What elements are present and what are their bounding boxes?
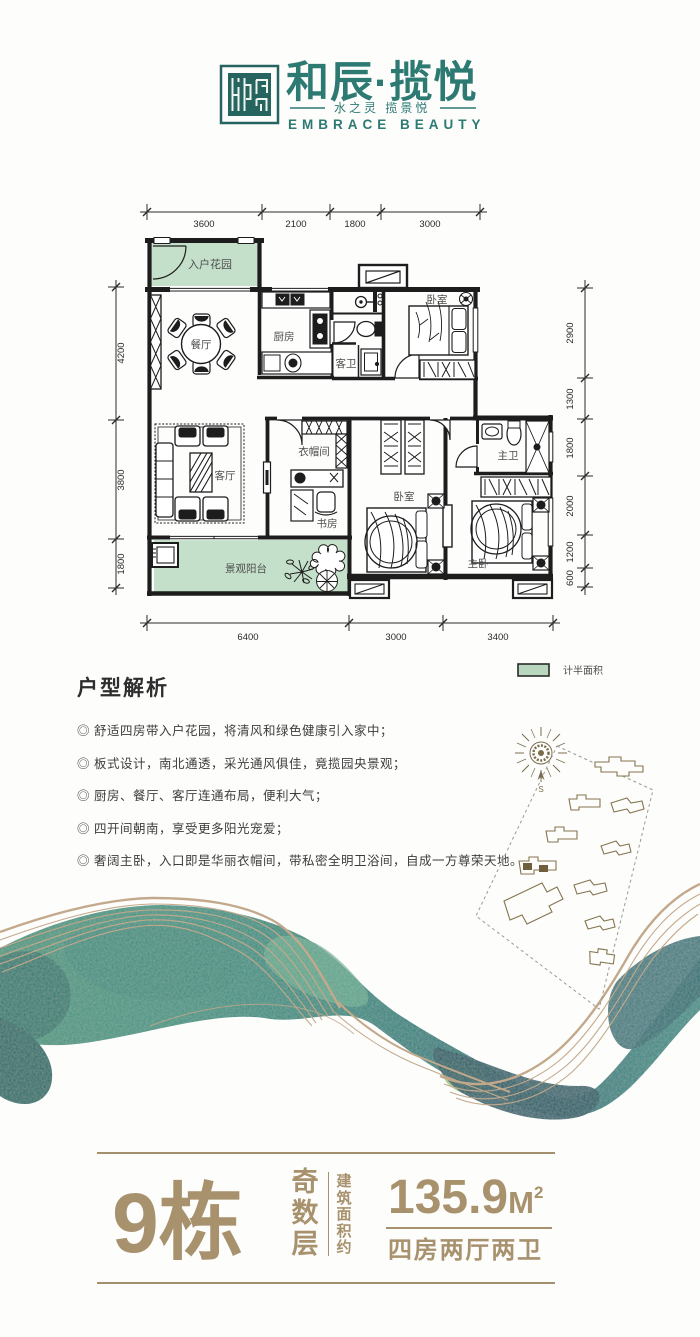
- svg-text:主卫: 主卫: [498, 450, 519, 462]
- svg-text:EMBRACE BEAUTY: EMBRACE BEAUTY: [288, 117, 486, 132]
- svg-text:3000: 3000: [385, 632, 406, 643]
- svg-text:1800: 1800: [344, 219, 365, 230]
- svg-text:S: S: [538, 785, 543, 794]
- svg-text:水之灵 揽景悦: 水之灵 揽景悦: [334, 101, 430, 115]
- svg-text:4200: 4200: [116, 342, 127, 363]
- svg-text:2900: 2900: [565, 322, 576, 343]
- svg-text:餐厅: 餐厅: [191, 338, 212, 351]
- svg-text:2100: 2100: [285, 219, 306, 230]
- svg-text:3600: 3600: [193, 219, 214, 230]
- svg-text:600: 600: [565, 570, 576, 586]
- svg-text:6400: 6400: [237, 632, 258, 643]
- svg-text:1300: 1300: [565, 388, 576, 409]
- svg-text:2000: 2000: [565, 495, 576, 516]
- svg-text:卧室: 卧室: [427, 293, 448, 306]
- svg-text:3800: 3800: [116, 469, 127, 490]
- svg-text:计半面积: 计半面积: [563, 664, 603, 677]
- svg-text:3400: 3400: [487, 632, 508, 643]
- svg-text:1200: 1200: [565, 541, 576, 562]
- svg-text:1800: 1800: [565, 437, 576, 458]
- svg-text:和辰·揽悦: 和辰·揽悦: [286, 59, 477, 107]
- svg-text:书房: 书房: [317, 517, 338, 530]
- svg-text:卧室: 卧室: [394, 490, 415, 503]
- svg-text:主卧: 主卧: [468, 557, 489, 570]
- svg-text:客卫: 客卫: [336, 357, 357, 370]
- svg-text:1800: 1800: [116, 553, 127, 574]
- svg-text:3000: 3000: [419, 219, 440, 230]
- svg-text:衣帽间: 衣帽间: [298, 445, 330, 458]
- svg-text:厨房: 厨房: [274, 330, 295, 343]
- svg-text:景观阳台: 景观阳台: [225, 562, 267, 575]
- svg-text:客厅: 客厅: [215, 469, 236, 482]
- svg-text:入户花园: 入户花园: [188, 257, 232, 271]
